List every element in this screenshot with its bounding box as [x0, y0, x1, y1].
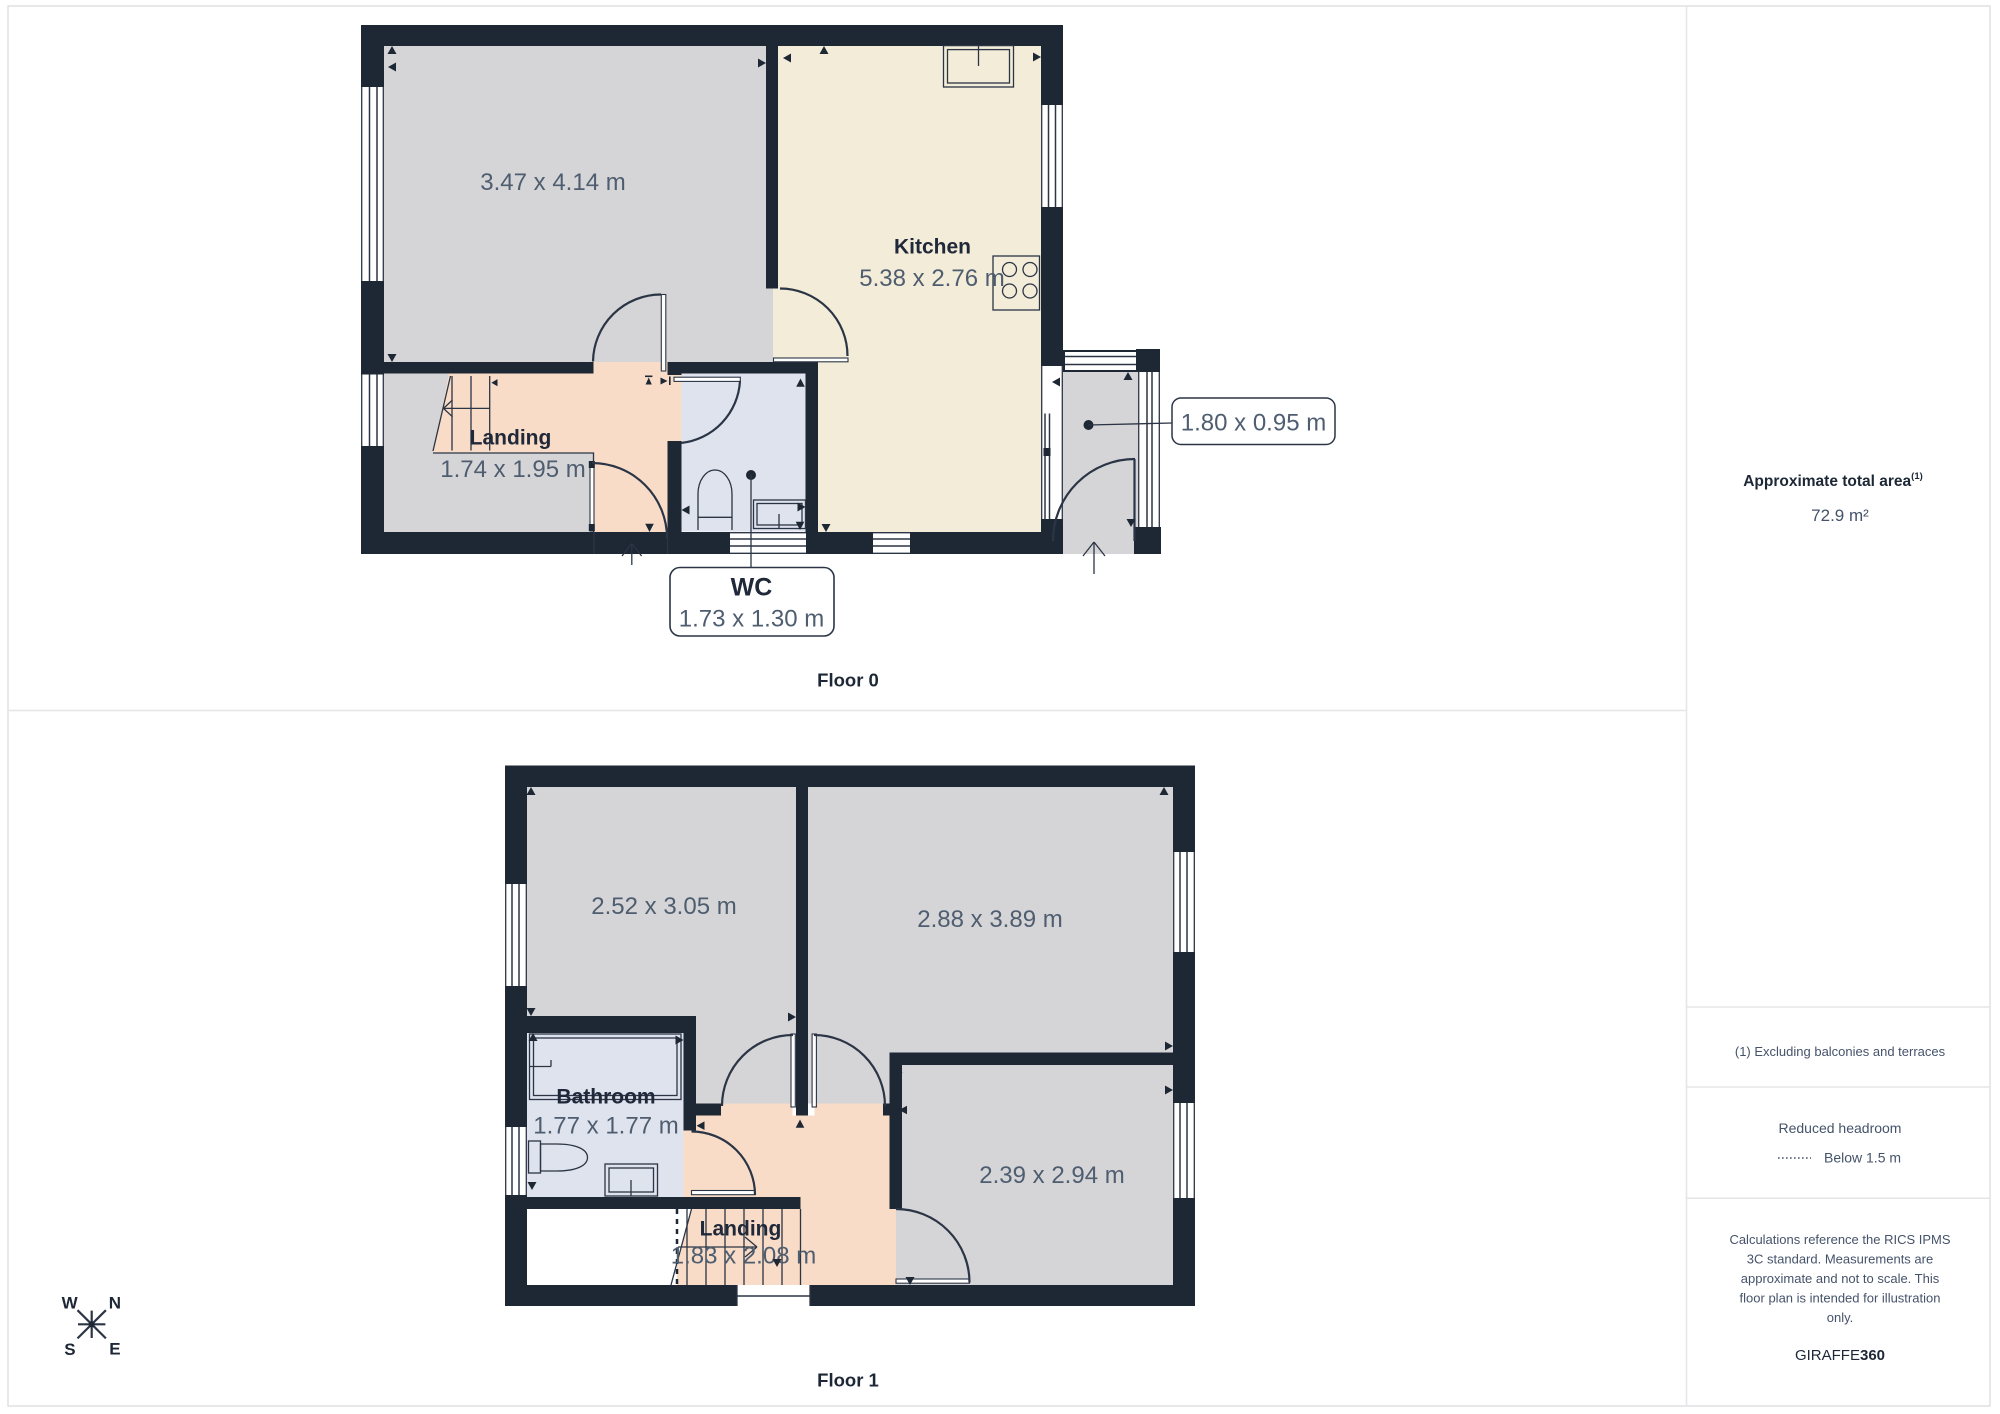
svg-text:72.9 m²: 72.9 m²: [1811, 506, 1869, 525]
svg-text:WC: WC: [731, 574, 773, 602]
svg-text:Kitchen: Kitchen: [894, 236, 971, 259]
svg-text:GIRAFFE360: GIRAFFE360: [1795, 1347, 1885, 1364]
svg-text:1.74 x 1.95 m: 1.74 x 1.95 m: [440, 456, 585, 483]
svg-text:Landing: Landing: [700, 1218, 782, 1241]
svg-text:S: S: [64, 1340, 75, 1359]
svg-text:1.80 x 0.95 m: 1.80 x 0.95 m: [1181, 410, 1326, 437]
svg-text:2.52 x 3.05 m: 2.52 x 3.05 m: [591, 893, 736, 920]
svg-text:Floor 0: Floor 0: [817, 670, 879, 691]
svg-text:W: W: [62, 1294, 79, 1313]
svg-text:1.83 x 2.08 m: 1.83 x 2.08 m: [671, 1243, 816, 1270]
svg-text:1.77 x 1.77 m: 1.77 x 1.77 m: [533, 1113, 678, 1140]
svg-text:1.73 x 1.30 m: 1.73 x 1.30 m: [679, 606, 824, 633]
svg-text:Calculations reference the RIC: Calculations reference the RICS IPMS: [1729, 1232, 1950, 1247]
svg-text:3.47 x 4.14 m: 3.47 x 4.14 m: [480, 169, 625, 196]
svg-text:3C standard. Measurements are: 3C standard. Measurements are: [1747, 1252, 1933, 1267]
svg-text:5.38 x 2.76 m: 5.38 x 2.76 m: [859, 265, 1004, 292]
svg-text:2.88 x 3.89 m: 2.88 x 3.89 m: [917, 906, 1062, 933]
svg-text:Approximate total area(1): Approximate total area(1): [1743, 471, 1923, 490]
svg-text:Below 1.5 m: Below 1.5 m: [1824, 1150, 1901, 1166]
svg-text:2.39 x 2.94 m: 2.39 x 2.94 m: [979, 1162, 1124, 1189]
svg-text:floor plan is intended for ill: floor plan is intended for illustration: [1740, 1291, 1941, 1306]
svg-text:Floor 1: Floor 1: [817, 1370, 879, 1391]
svg-text:only.: only.: [1827, 1310, 1854, 1325]
svg-text:N: N: [109, 1294, 121, 1313]
svg-text:E: E: [109, 1340, 120, 1359]
svg-text:Reduced headroom: Reduced headroom: [1779, 1120, 1902, 1136]
svg-text:Bathroom: Bathroom: [556, 1086, 655, 1109]
svg-text:approximate and not to scale.: approximate and not to scale. This: [1741, 1271, 1940, 1286]
svg-text:(1) Excluding balconies and te: (1) Excluding balconies and terraces: [1735, 1044, 1946, 1059]
svg-text:Landing: Landing: [470, 427, 552, 450]
